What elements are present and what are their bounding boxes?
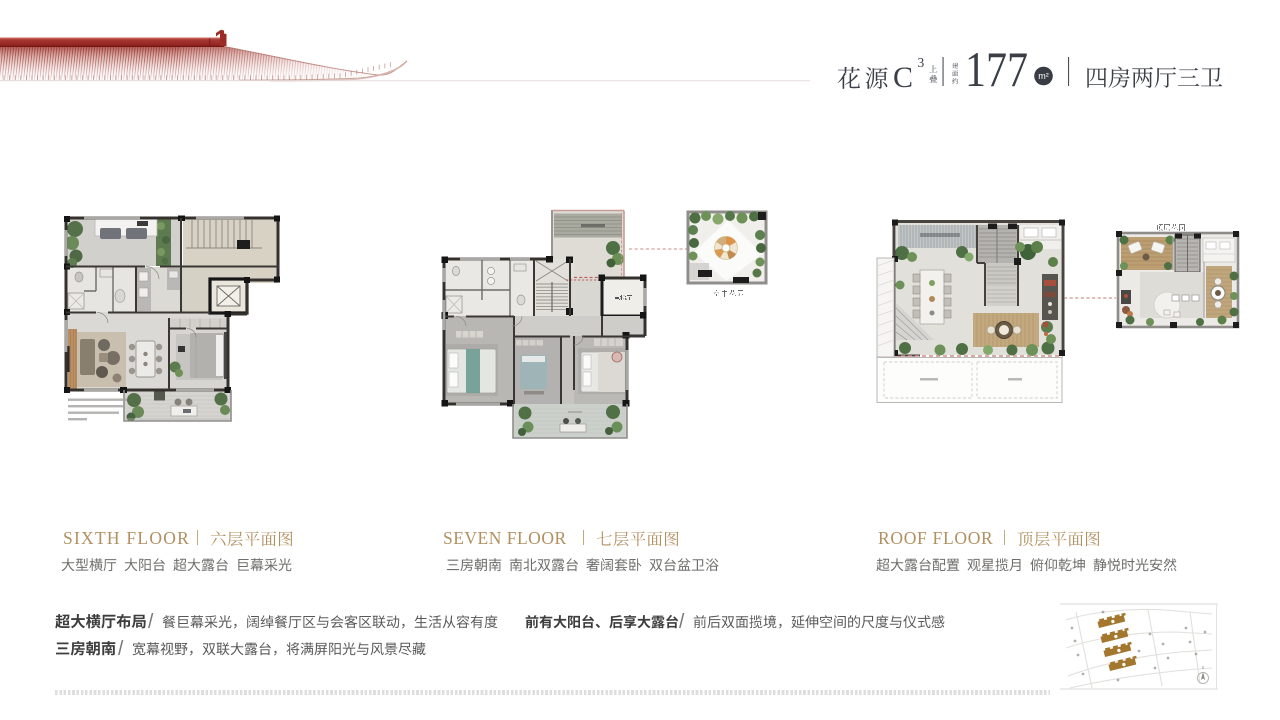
svg-text:3: 3 (918, 55, 925, 70)
svg-text:ROOF FLOOR: ROOF FLOOR (878, 528, 993, 548)
svg-text:SEVEN FLOOR: SEVEN FLOOR (443, 528, 567, 548)
svg-text:SIXTH FLOOR: SIXTH FLOOR (63, 528, 190, 548)
svg-text:C: C (893, 61, 913, 94)
svg-text:177: 177 (965, 41, 1028, 97)
svg-text:m²: m² (1038, 71, 1049, 81)
